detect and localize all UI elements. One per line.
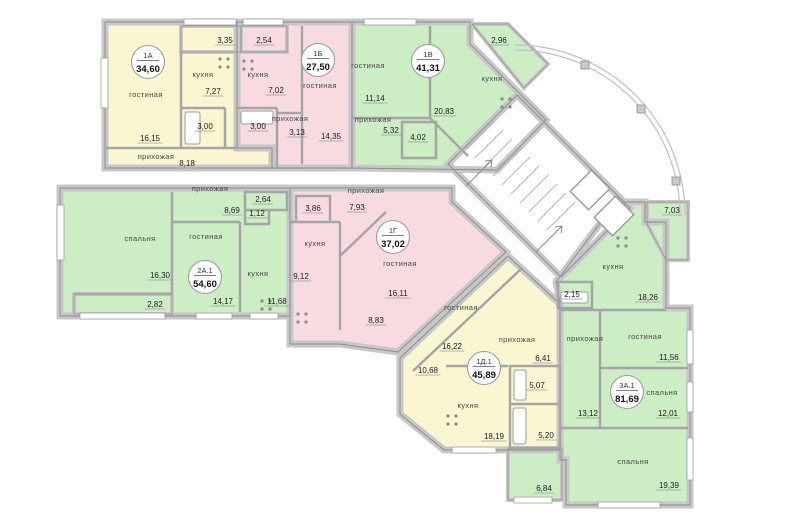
- balcony-3a1-bottom: [508, 448, 562, 500]
- room-label: прихожая: [192, 184, 229, 193]
- room-label: прихожая: [499, 335, 536, 344]
- unit-badge[interactable]: 1Д.145,89: [468, 352, 501, 385]
- dim-label: 11,56: [659, 353, 679, 362]
- dim-label: 9,12: [293, 272, 309, 281]
- room-label: прихожая: [567, 334, 604, 343]
- stove-icon: [624, 236, 627, 239]
- stove-icon: [218, 57, 221, 60]
- stove-icon: [508, 105, 511, 108]
- room-label: кухня: [192, 70, 213, 79]
- dim-label: 10,68: [418, 366, 439, 375]
- dim-label: 7,03: [664, 206, 680, 215]
- dim-label: 20,83: [434, 107, 455, 116]
- dim-label: 11,14: [365, 94, 385, 103]
- unit-badge[interactable]: 1В41,31: [412, 45, 445, 78]
- dim-label: 3,00: [250, 122, 266, 131]
- unit-id: 2А.1: [197, 266, 212, 275]
- unit-area: 54,60: [193, 279, 217, 290]
- dim-label: 8,83: [368, 316, 384, 325]
- stove-icon: [296, 312, 299, 315]
- dim-label: 6,84: [536, 484, 552, 493]
- dim-label: 18,26: [638, 293, 659, 302]
- room-label: спальня: [124, 234, 155, 243]
- dim-label: 5,07: [529, 381, 545, 390]
- stove-icon: [268, 307, 271, 310]
- stove-icon: [304, 312, 307, 315]
- dim-label: 4,02: [410, 133, 426, 142]
- dim-label: 6,41: [535, 354, 551, 363]
- stove-icon: [226, 57, 229, 60]
- stove-icon: [500, 105, 503, 108]
- unit-id: 1А: [143, 51, 152, 60]
- dim-label: 5,32: [383, 126, 399, 135]
- dim-label: 2,82: [147, 300, 163, 309]
- unit-badge[interactable]: 1Б27,50: [302, 44, 335, 77]
- unit-area: 37,02: [381, 239, 405, 250]
- room-label: гостиная: [303, 81, 337, 90]
- unit-area: 34,60: [136, 64, 160, 75]
- dim-label: 8,18: [179, 159, 195, 168]
- stove-icon: [260, 299, 263, 302]
- dim-label: 16,11: [388, 289, 408, 298]
- dim-label: 18,19: [484, 432, 505, 441]
- stove-icon: [242, 67, 245, 70]
- dim-label: 7,93: [349, 203, 365, 212]
- stove-icon: [250, 59, 253, 62]
- room-label: прихожая: [272, 114, 309, 123]
- stove-icon: [454, 414, 457, 417]
- stove-icon: [508, 97, 511, 100]
- dim-label: 3,13: [289, 128, 305, 137]
- stove-icon: [500, 97, 503, 100]
- unit-id: 1В: [423, 50, 432, 59]
- dim-label: 16,22: [442, 342, 463, 351]
- dim-label: 7,27: [205, 87, 221, 96]
- dim-label: 3,00: [197, 122, 213, 131]
- stove-icon: [616, 236, 619, 239]
- room-label: прихожая: [138, 152, 175, 161]
- dim-label: 5,20: [538, 431, 554, 440]
- dim-label: 16,30: [150, 271, 171, 280]
- dim-label: 19,39: [659, 481, 680, 490]
- room-label: гостиная: [351, 61, 385, 70]
- unit-area: 45,89: [472, 370, 496, 381]
- stove-icon: [242, 59, 245, 62]
- room-label: кухня: [304, 239, 325, 248]
- stove-icon: [446, 422, 449, 425]
- unit-badge[interactable]: 3А.181,69: [611, 376, 644, 409]
- dim-label: 2,96: [491, 36, 507, 45]
- dim-label: 1,12: [249, 209, 265, 218]
- room-label: кухня: [247, 269, 268, 278]
- stove-icon: [616, 244, 619, 247]
- room-label: кухня: [481, 74, 502, 83]
- dim-label: 2,54: [256, 36, 272, 45]
- unit-id: 1Д.1: [476, 357, 492, 366]
- stove-icon: [446, 414, 449, 417]
- unit-id: 1Б: [313, 49, 322, 58]
- room-label: кухня: [247, 70, 268, 79]
- bathtub-icon: [514, 370, 526, 400]
- dim-label: 3,86: [305, 204, 321, 213]
- stove-icon: [226, 65, 229, 68]
- stove-icon: [260, 307, 263, 310]
- stove-icon: [624, 244, 627, 247]
- dim-label: 14,17: [213, 297, 234, 306]
- dim-label: 12,01: [658, 409, 679, 418]
- dim-label: 7,02: [268, 86, 284, 95]
- dim-label: 3,35: [217, 36, 233, 45]
- stove-icon: [218, 65, 221, 68]
- unit-badge[interactable]: 2А.154,60: [189, 261, 222, 294]
- dim-label: 2,15: [564, 290, 580, 299]
- floor-plan-page: гостинаякухняприхожая16,157,273,008,183,…: [0, 0, 800, 525]
- room-label: гостиная: [189, 232, 223, 241]
- dim-label: 16,15: [140, 134, 161, 143]
- room-label: спальня: [617, 457, 648, 466]
- unit-area: 41,31: [416, 63, 440, 74]
- dim-label: 14,35: [321, 132, 342, 141]
- bathtub-icon: [513, 408, 526, 444]
- floor-plan: гостинаякухняприхожая16,157,273,008,183,…: [0, 0, 800, 525]
- room-label: прихожая: [348, 186, 385, 195]
- stove-icon: [296, 320, 299, 323]
- unit-badge[interactable]: 1Г37,02: [377, 221, 410, 254]
- dim-label: 13,12: [578, 409, 599, 418]
- unit-area: 27,50: [306, 62, 330, 73]
- dim-label: 8,69: [224, 206, 240, 215]
- room-label: гостиная: [129, 90, 163, 99]
- unit-id: 1Г: [389, 226, 397, 235]
- stove-icon: [304, 320, 307, 323]
- unit-id: 3А.1: [619, 381, 634, 390]
- room-label: гостиная: [628, 332, 662, 341]
- room-label: кухня: [602, 262, 623, 271]
- room-label: кухня: [457, 401, 478, 410]
- room-label: гостиная: [444, 303, 478, 312]
- unit-badge[interactable]: 1А34,60: [132, 46, 165, 79]
- room-label: прихожая: [355, 115, 392, 124]
- unit-area: 81,69: [615, 394, 639, 405]
- dim-label: 2,64: [255, 195, 271, 204]
- dim-label: 11,68: [267, 297, 287, 306]
- room-label: спальня: [646, 388, 677, 397]
- stove-icon: [454, 422, 457, 425]
- room-label: гостиная: [383, 259, 417, 268]
